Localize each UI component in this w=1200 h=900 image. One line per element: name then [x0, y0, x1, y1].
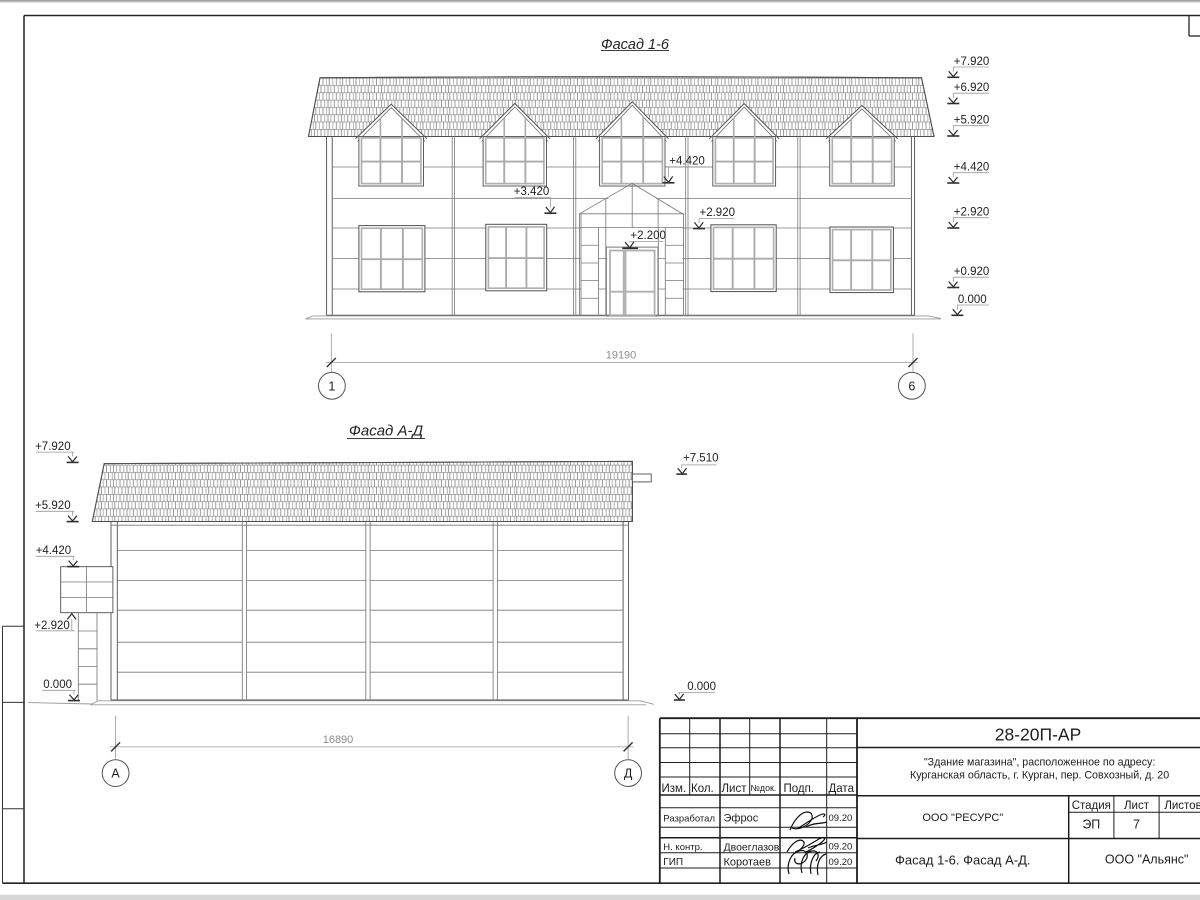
svg-text:+4.420: +4.420 [954, 162, 990, 174]
svg-text:Подп.: Подп. [784, 783, 815, 795]
svg-text:"Здание магазина", расположенн: "Здание магазина", расположенное по адре… [924, 756, 1156, 768]
svg-text:0.000: 0.000 [687, 681, 716, 693]
svg-text:0.000: 0.000 [43, 679, 72, 691]
svg-text:Кол.: Кол. [691, 783, 714, 795]
svg-text:+7.920: +7.920 [954, 56, 990, 68]
svg-text:28-20П-АР: 28-20П-АР [995, 725, 1082, 745]
svg-text:+0.920: +0.920 [954, 266, 990, 278]
svg-text:+6.920: +6.920 [954, 82, 990, 94]
svg-text:1: 1 [328, 379, 335, 393]
svg-text:09.20: 09.20 [829, 842, 853, 853]
svg-text:09.20: 09.20 [829, 813, 853, 824]
svg-text:+2.200: +2.200 [630, 230, 666, 242]
svg-text:Д: Д [624, 767, 633, 781]
svg-text:Стадия: Стадия [1072, 800, 1111, 812]
svg-text:Дата: Дата [829, 783, 855, 795]
svg-text:+3.420: +3.420 [514, 186, 550, 198]
svg-text:Эфрос: Эфрос [724, 813, 759, 825]
svg-text:ООО "Альянс": ООО "Альянс" [1105, 853, 1189, 867]
svg-text:+2.920: +2.920 [700, 207, 736, 219]
svg-text:А: А [111, 767, 120, 781]
svg-text:ГИП: ГИП [663, 857, 683, 868]
svg-text:+5.920: +5.920 [35, 500, 71, 512]
svg-text:6: 6 [908, 379, 915, 393]
svg-text:+2.920: +2.920 [34, 620, 70, 632]
svg-text:7: 7 [1133, 818, 1140, 832]
svg-text:+5.920: +5.920 [954, 115, 990, 127]
svg-text:+7.510: +7.510 [683, 453, 719, 465]
svg-text:ООО "РЕСУРС": ООО "РЕСУРС" [922, 812, 1003, 824]
svg-text:+4.420: +4.420 [36, 545, 72, 557]
svg-text:Н. контр.: Н. контр. [663, 842, 702, 853]
svg-text:Листов: Листов [1164, 800, 1200, 812]
svg-text:+4.420: +4.420 [669, 155, 705, 167]
svg-text:ЭП: ЭП [1082, 818, 1100, 832]
svg-text:Разработал: Разработал [663, 813, 715, 824]
svg-text:Двоеглазов: Двоеглазов [724, 841, 780, 853]
svg-text:№док.: №док. [751, 783, 777, 793]
svg-text:Курганская область, г. Курган,: Курганская область, г. Курган, пер. Совх… [910, 770, 1169, 782]
svg-text:19190: 19190 [606, 349, 637, 361]
svg-text:Фасад 1-6. Фасад А-Д.: Фасад 1-6. Фасад А-Д. [895, 852, 1031, 867]
svg-text:+7.920: +7.920 [35, 441, 71, 453]
svg-text:Коротаев: Коротаев [724, 856, 772, 868]
svg-text:Лист: Лист [1124, 800, 1150, 812]
svg-text:Лист: Лист [722, 783, 748, 795]
svg-text:0.000: 0.000 [958, 294, 987, 306]
svg-text:09.20: 09.20 [829, 857, 853, 868]
svg-text:+2.920: +2.920 [954, 207, 990, 219]
svg-text:Изм.: Изм. [662, 783, 687, 795]
svg-text:Фасад А-Д: Фасад А-Д [349, 423, 424, 440]
svg-text:16890: 16890 [323, 734, 354, 746]
